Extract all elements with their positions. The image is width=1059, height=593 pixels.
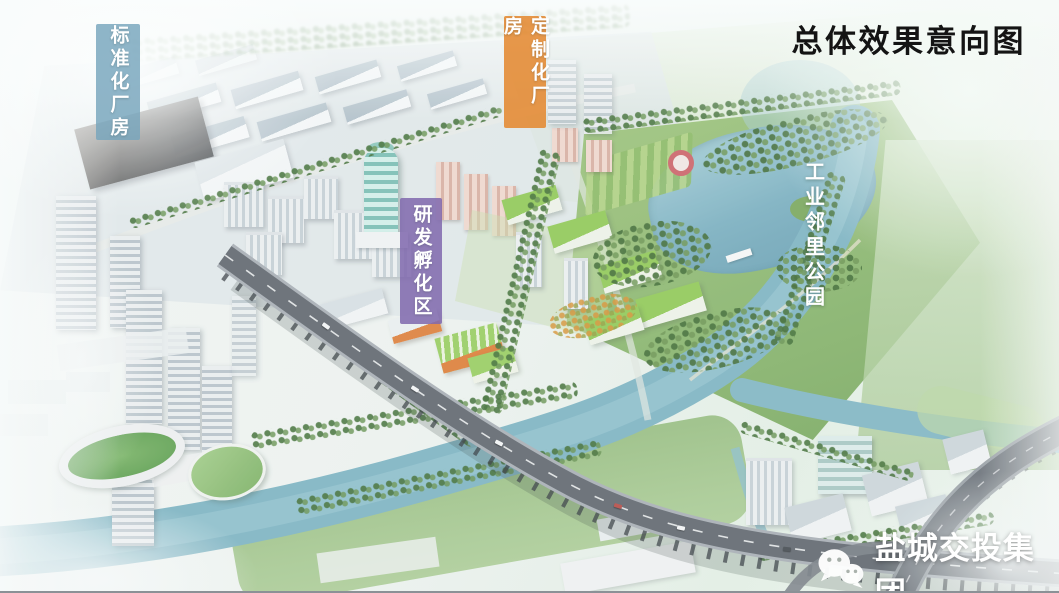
page-title: 总体效果意向图 (792, 16, 1027, 61)
label-neighborhood-park: 工业邻里公园 (794, 160, 832, 312)
label-neighborhood-park-text: 工业邻里公园 (799, 161, 828, 311)
brand-watermark-text: 盐城交投集团 (875, 523, 1059, 593)
office-building (304, 176, 338, 219)
glass-tower (364, 148, 398, 236)
tower-building (548, 60, 576, 124)
aerial-rendering: 标准化厂房 定制化厂房 研发孵化区 工业邻里公园 总体效果意向图 盐城交投集团 (0, 0, 1059, 593)
office-building (246, 232, 282, 275)
car (783, 547, 791, 552)
label-rd-incubation-text: 研发孵化区 (408, 204, 435, 319)
low-building (8, 380, 66, 404)
red-circle-plaza (668, 150, 694, 176)
tower-building (232, 296, 256, 376)
low-building (66, 372, 110, 392)
label-standard-factory-text: 标准化厂房 (105, 25, 132, 140)
label-custom-factory-text: 定制化厂房 (498, 16, 552, 128)
label-custom-factory: 定制化厂房 (504, 16, 546, 128)
brand-watermark: 盐城交投集团 (816, 523, 1059, 593)
label-rd-incubation: 研发孵化区 (400, 198, 442, 324)
wechat-icon (816, 545, 866, 591)
residential-block (586, 140, 612, 172)
tower-building (56, 196, 96, 330)
label-standard-factory: 标准化厂房 (96, 24, 140, 140)
low-building (0, 414, 48, 436)
